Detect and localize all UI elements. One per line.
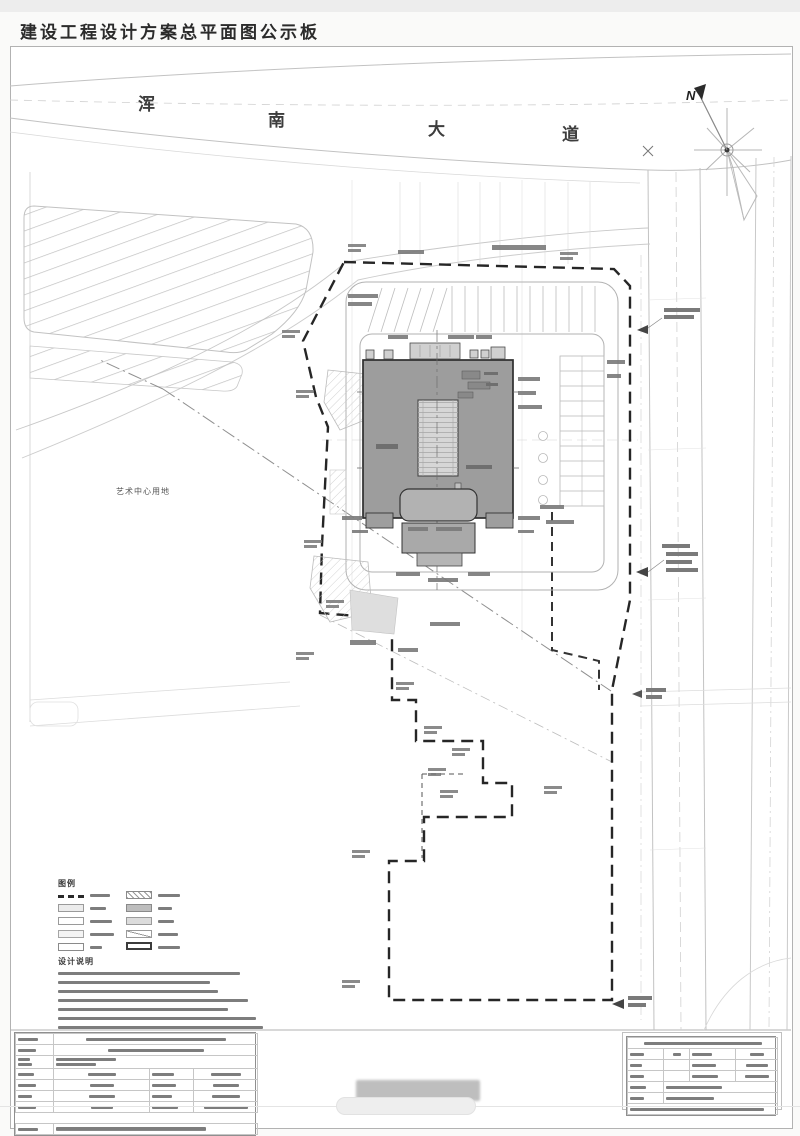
legend-label xyxy=(90,907,106,910)
legend-swatch xyxy=(58,943,84,951)
legend-label xyxy=(90,920,112,923)
legend-swatch xyxy=(58,917,84,925)
legend-label xyxy=(158,894,180,897)
note-line xyxy=(58,1026,263,1029)
notes-heading: 设计说明 xyxy=(58,956,288,967)
atrium-skylight xyxy=(418,400,458,476)
legend-heading: 图例 xyxy=(58,878,268,889)
north-compass: N xyxy=(686,84,762,220)
leader-arrow-icon xyxy=(637,325,648,334)
legend-label xyxy=(90,894,110,897)
legend-label xyxy=(90,946,102,949)
compass-needle-flag xyxy=(694,84,706,100)
approval-table-outer xyxy=(622,1032,782,1110)
legend-label xyxy=(158,920,174,923)
road-char-1: 浑 xyxy=(138,94,155,114)
leader-arrow-icon xyxy=(636,567,648,577)
parking-stalls xyxy=(368,286,595,332)
road-char-2: 南 xyxy=(268,110,285,130)
road-char-3: 大 xyxy=(428,119,445,139)
roof-elements xyxy=(366,343,505,359)
photo-glare-pill xyxy=(336,1097,476,1115)
legend-label xyxy=(158,946,180,949)
note-line xyxy=(58,999,248,1002)
cross-marker-icon xyxy=(643,146,653,156)
design-notes: 设计说明 xyxy=(58,956,288,1026)
east-parking-strip xyxy=(539,356,605,506)
reserved-site-label: 艺术中心用地 xyxy=(116,486,170,496)
road-char-4: 道 xyxy=(562,124,579,144)
approval-table xyxy=(626,1036,776,1116)
note-line xyxy=(58,1008,228,1011)
north-label: N xyxy=(686,88,696,103)
legend-swatch-bold xyxy=(126,942,152,950)
legend-swatch xyxy=(126,904,152,912)
legend-swatch xyxy=(58,904,84,912)
legend-swatch xyxy=(126,917,152,925)
legend-label xyxy=(158,907,172,910)
note-line xyxy=(58,990,218,993)
road-name: 浑 南 大 道 xyxy=(138,94,579,144)
leader-arrow-icon xyxy=(632,690,642,698)
project-info-grid xyxy=(15,1033,258,1135)
note-line xyxy=(58,972,240,975)
legend-swatch xyxy=(126,930,152,938)
note-line xyxy=(58,1017,256,1020)
leader-arrow-icon xyxy=(612,999,624,1009)
approval-grid xyxy=(627,1037,778,1115)
legend-label xyxy=(90,933,114,936)
legend-label xyxy=(158,933,178,936)
project-info-table xyxy=(14,1032,256,1136)
road-annotations xyxy=(612,146,700,1009)
legend-swatch xyxy=(58,930,84,938)
note-line xyxy=(58,981,210,984)
legend-swatch-hatch xyxy=(126,891,152,899)
legend-swatch-boundary xyxy=(58,895,84,898)
legend: 图例 xyxy=(58,878,268,956)
hatched-parking-area xyxy=(24,206,313,391)
